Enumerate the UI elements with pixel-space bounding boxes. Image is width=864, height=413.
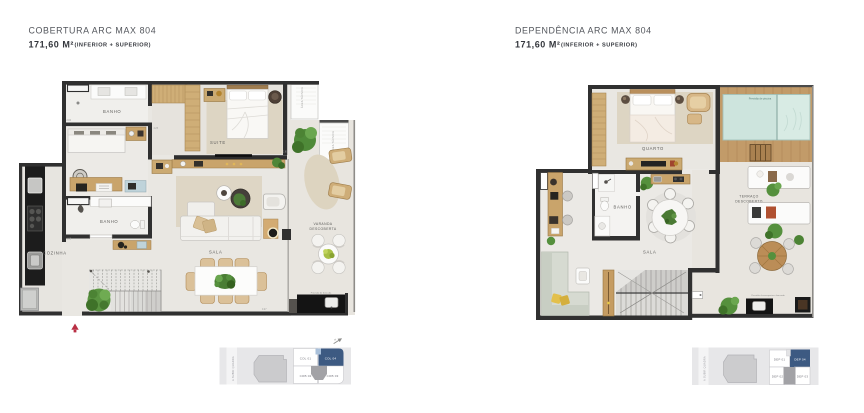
svg-text:BANHO: BANHO: [103, 109, 121, 114]
svg-text:DESCOBERTA: DESCOBERTA: [309, 227, 336, 231]
svg-text:2.80: 2.80: [283, 152, 288, 154]
svg-text:DEP 01: DEP 01: [774, 358, 786, 362]
svg-text:DEP 04: DEP 04: [794, 358, 806, 362]
svg-text:A SUBIR QUADRA: A SUBIR QUADRA: [703, 356, 707, 381]
svg-text:TERRAÇO: TERRAÇO: [739, 195, 758, 199]
svg-text:(INFERIOR + SUPERIOR): (INFERIOR + SUPERIOR): [75, 43, 152, 49]
svg-text:Previsão churrasqueira e banca: Previsão churrasqueira e bancada: [751, 294, 785, 297]
svg-text:BANHO: BANHO: [614, 205, 632, 210]
svg-text:COB 03: COB 03: [327, 374, 339, 378]
svg-text:SALA: SALA: [209, 250, 223, 255]
svg-text:QUARTO: QUARTO: [642, 146, 664, 151]
svg-text:VARANDA: VARANDA: [314, 222, 333, 226]
svg-text:0.27: 0.27: [262, 309, 267, 311]
svg-text:DEP 03: DEP 03: [797, 375, 809, 379]
svg-text:A SUBIR QUADRA: A SUBIR QUADRA: [231, 356, 235, 381]
svg-text:Previsão de piscina: Previsão de piscina: [749, 97, 772, 101]
svg-text:1.08: 1.08: [67, 239, 72, 241]
svg-text:(INFERIOR + SUPERIOR): (INFERIOR + SUPERIOR): [561, 43, 638, 49]
svg-text:171,60 M²: 171,60 M²: [515, 40, 560, 50]
svg-text:SALA: SALA: [643, 250, 657, 255]
svg-text:COL 04: COL 04: [325, 357, 337, 361]
svg-text:SUITE: SUITE: [210, 140, 226, 145]
svg-text:ÁREA TÉCNICA: ÁREA TÉCNICA: [301, 87, 304, 108]
svg-text:COZINHA: COZINHA: [43, 251, 67, 256]
svg-text:COB 02: COB 02: [300, 374, 312, 378]
svg-text:DEPENDÊNCIA ARC MAX 804: DEPENDÊNCIA ARC MAX 804: [515, 26, 652, 36]
svg-text:2.84: 2.84: [67, 120, 72, 122]
svg-text:ÁREA TÉCNICA: ÁREA TÉCNICA: [332, 131, 335, 152]
svg-text:BANHO: BANHO: [100, 219, 118, 224]
svg-text:4.25: 4.25: [154, 128, 159, 130]
svg-text:171,60 M²: 171,60 M²: [29, 40, 74, 50]
svg-text:COL 01: COL 01: [300, 357, 312, 361]
svg-text:COBERTURA ARC MAX 804: COBERTURA ARC MAX 804: [29, 26, 157, 36]
svg-text:Previsão de bancada: Previsão de bancada: [311, 291, 332, 294]
svg-text:DEP 02: DEP 02: [772, 375, 784, 379]
